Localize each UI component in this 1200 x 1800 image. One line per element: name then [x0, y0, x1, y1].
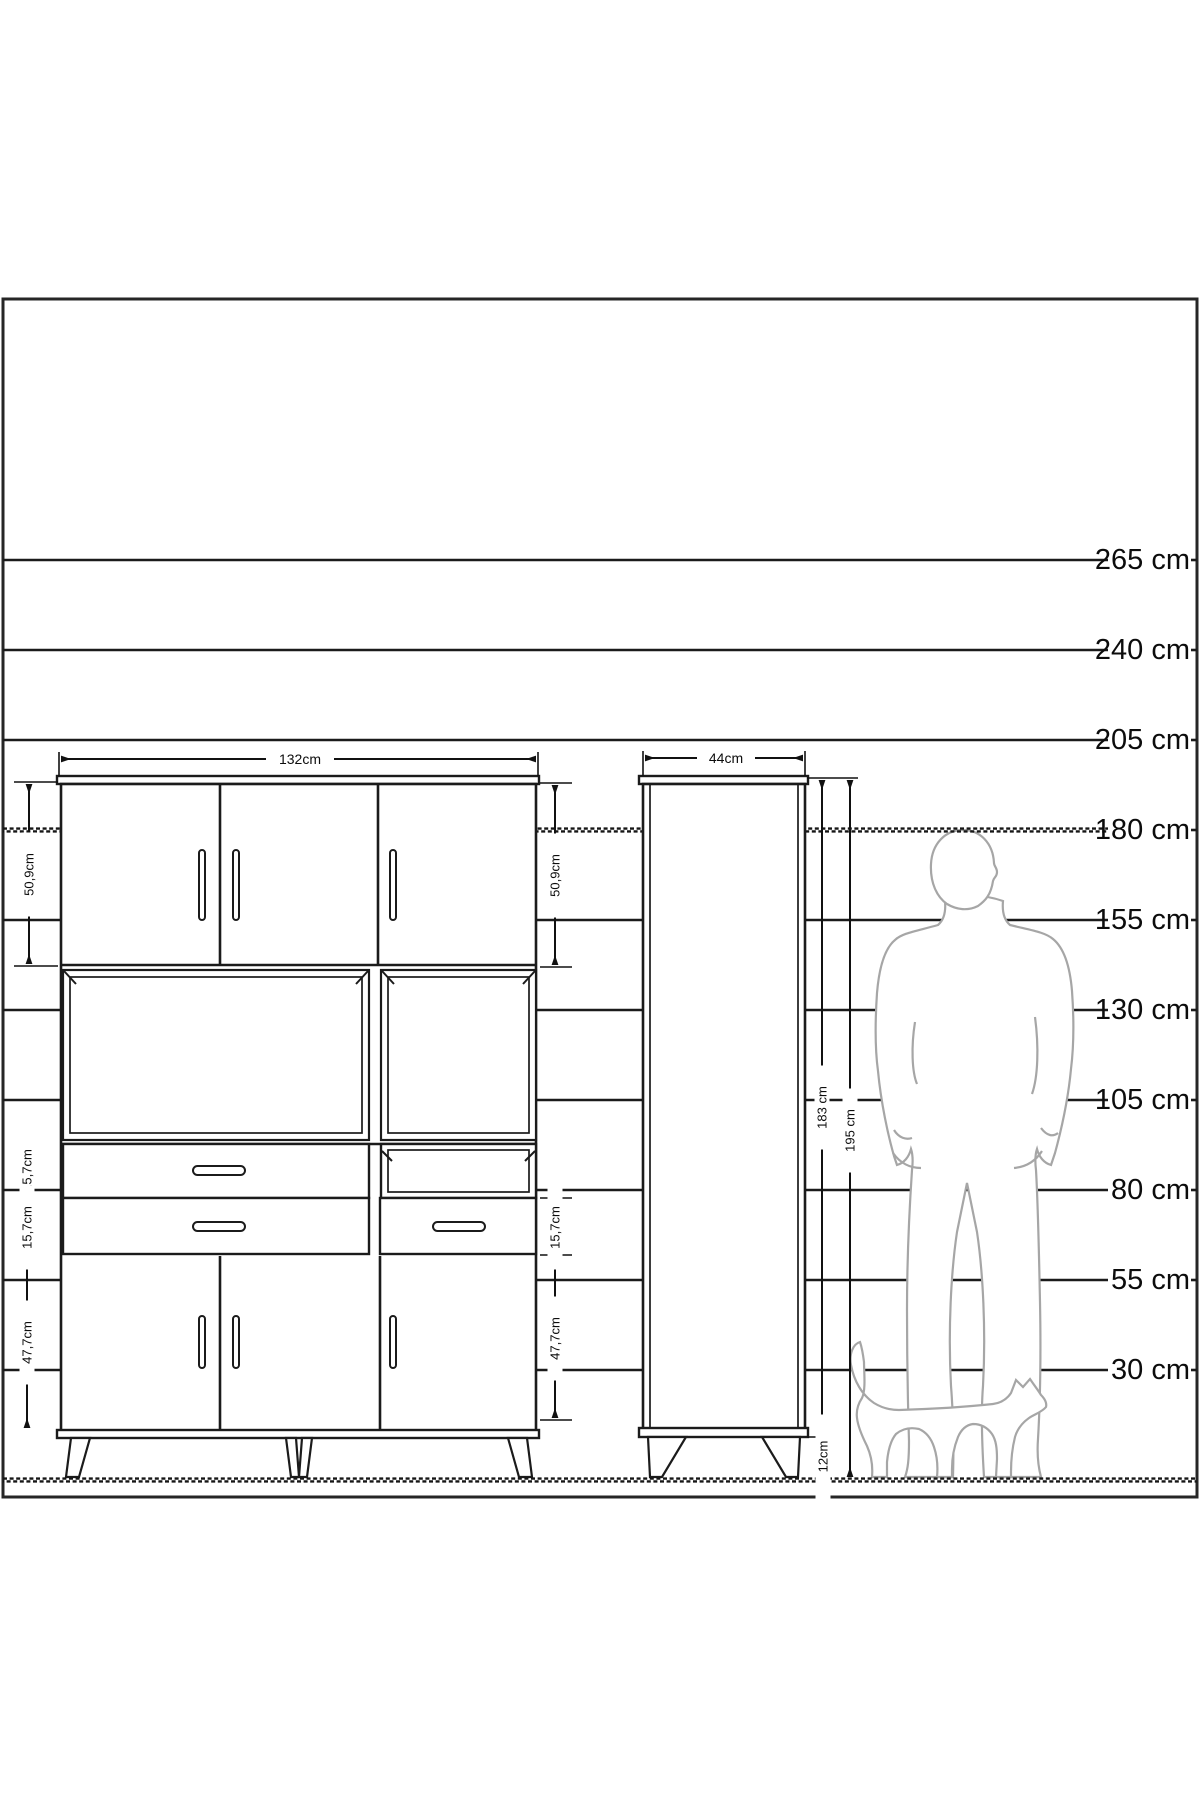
ruler-label-55: 55 cm [1040, 1264, 1190, 1296]
right-drawer-height-label: 15,7cm [548, 1186, 563, 1270]
ruler-label-155: 155 cm [1040, 904, 1190, 936]
right-upper-doors-height-label: 50,9cm [548, 834, 563, 918]
ruler-label-130: 130 cm [1040, 994, 1190, 1026]
left-lower-doors-height-label: 47,7cm [20, 1301, 35, 1385]
front-cabinet-drawing [57, 776, 539, 1477]
ruler-label-180: 180 cm [1040, 814, 1190, 846]
left-upper-doors-height-label: 50,9cm [22, 833, 37, 917]
ruler-label-80: 80 cm [1040, 1174, 1190, 1206]
ruler-label-265: 265 cm [1040, 544, 1190, 576]
left-drawer2-height-label: 15,7cm [20, 1186, 35, 1270]
side-body-height-label: 183 cm [815, 1066, 830, 1150]
side-total-height-label: 195 cm [843, 1089, 858, 1173]
rope-line-ground [3, 1479, 1197, 1482]
right-lower-doors-height-label: 47,7cm [548, 1297, 563, 1381]
ruler-label-105: 105 cm [1040, 1084, 1190, 1116]
front-width-label: 132cm [266, 751, 334, 767]
dimension-diagram: 265 cm 240 cm 205 cm 180 cm 155 cm 130 c… [0, 0, 1200, 1800]
ruler-label-30: 30 cm [1040, 1354, 1190, 1386]
side-depth-label: 44cm [697, 750, 755, 766]
side-cabinet-drawing [639, 776, 808, 1477]
ruler-label-205: 205 cm [1040, 724, 1190, 756]
diagram-linework [0, 0, 1200, 1800]
side-leg-height-label: 12cm [816, 1415, 831, 1499]
ruler-label-240: 240 cm [1040, 634, 1190, 666]
